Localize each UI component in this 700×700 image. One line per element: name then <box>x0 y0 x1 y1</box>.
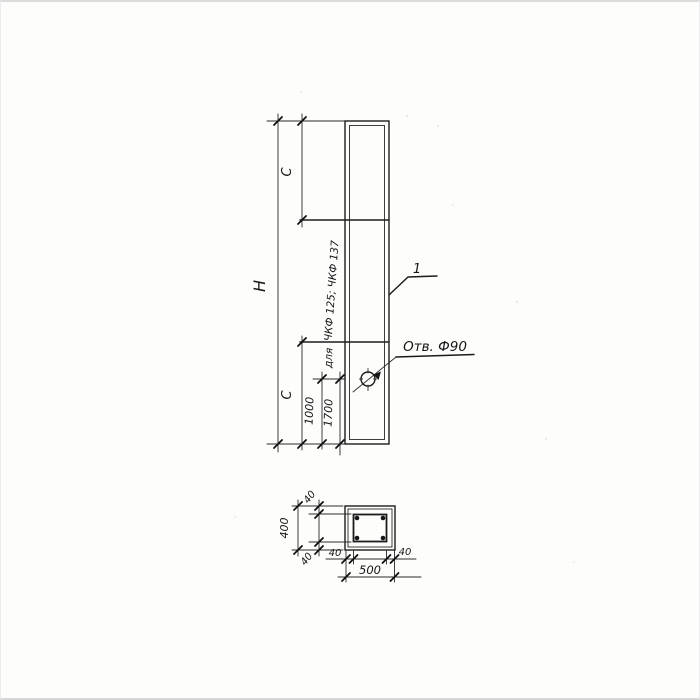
dim-label-cover-right: 40 <box>399 547 412 558</box>
dim-label-c-bottom: С <box>280 390 295 400</box>
dim-label-500: 500 <box>359 563 381 577</box>
dim-label-cover-left: 40 <box>329 548 342 559</box>
technical-drawing: Н С С 1000 1700 для ЧКФ 125; ЧКФ 137 Отв… <box>1 2 700 700</box>
rebar-dot <box>355 516 360 521</box>
dim-label-overall-height: Н <box>250 280 269 292</box>
scanned-drawing-page: Н С С 1000 1700 для ЧКФ 125; ЧКФ 137 Отв… <box>0 0 700 700</box>
note-applicability-types: ЧКФ 125; ЧКФ 137 <box>322 240 341 342</box>
dim-label-cover-bottom: 40 <box>299 551 316 568</box>
dim-label-1700: 1700 <box>322 399 336 427</box>
elevation-view: Н С С 1000 1700 для ЧКФ 125; ЧКФ 137 Отв… <box>250 114 474 455</box>
column-outline <box>345 121 389 444</box>
hole-callout: Отв. Ф90 <box>396 339 474 357</box>
reinforcement-cage <box>354 515 387 542</box>
dim-label-c-top: С <box>280 167 295 177</box>
rebar-dot <box>381 536 386 541</box>
section-outline <box>345 506 395 550</box>
scan-noise <box>234 91 575 563</box>
rebar-dot <box>381 516 386 521</box>
item-number-label: 1 <box>413 262 421 277</box>
rebar-dot <box>355 536 360 541</box>
note-applicability-prefix: для <box>322 347 335 369</box>
dim-label-1000: 1000 <box>303 397 317 425</box>
dim-label-cover-top: 40 <box>302 489 319 506</box>
hole-callout-label: Отв. Ф90 <box>403 339 467 355</box>
item-leader: 1 <box>389 262 437 295</box>
dim-label-400: 400 <box>278 518 291 539</box>
section-view: 400 40 40 40 40 500 <box>278 489 421 582</box>
